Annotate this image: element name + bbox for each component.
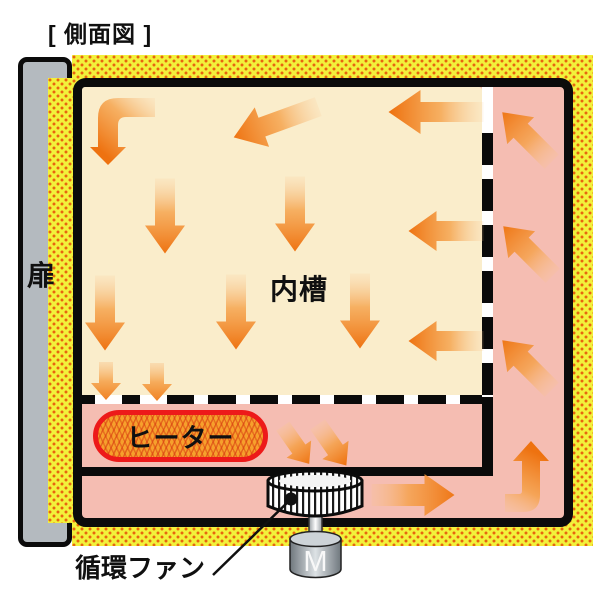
motor-label: M xyxy=(295,546,336,579)
flow-arrow-icon xyxy=(489,327,565,403)
oven-side-view-diagram: ヒーター xyxy=(0,0,600,600)
flow-arrow-elbow-down-icon xyxy=(90,98,155,165)
flow-arrow-icon xyxy=(490,213,566,289)
circulation-fan-label: 循環ファン xyxy=(75,548,205,585)
flow-arrow-elbow-up-icon xyxy=(505,441,549,512)
flow-arrow-icon xyxy=(275,177,315,252)
fan-pointer-line xyxy=(213,499,291,575)
flow-arrow-small-icon xyxy=(142,363,172,401)
flow-arrow-icon xyxy=(389,90,484,134)
flow-arrow-icon xyxy=(409,211,484,251)
flow-arrow-icon xyxy=(305,415,360,474)
flow-arrow-icon xyxy=(216,275,256,350)
flow-arrow-icon xyxy=(271,418,322,473)
flow-arrow-icon xyxy=(85,276,125,351)
flow-arrow-icon xyxy=(340,274,380,349)
door-label: 扉 xyxy=(27,254,55,294)
flow-arrow-icon xyxy=(409,321,484,361)
flow-arrow-icon xyxy=(227,87,326,157)
flow-arrow-icon xyxy=(372,474,455,516)
flow-arrow-icon xyxy=(489,99,565,175)
page-title: [ 側面図 ] xyxy=(48,15,152,49)
fan-pointer-dot xyxy=(285,493,298,506)
flow-arrow-icon xyxy=(145,179,185,254)
flow-arrow-small-icon xyxy=(91,362,121,400)
inner-chamber-label: 内槽 xyxy=(270,268,328,308)
